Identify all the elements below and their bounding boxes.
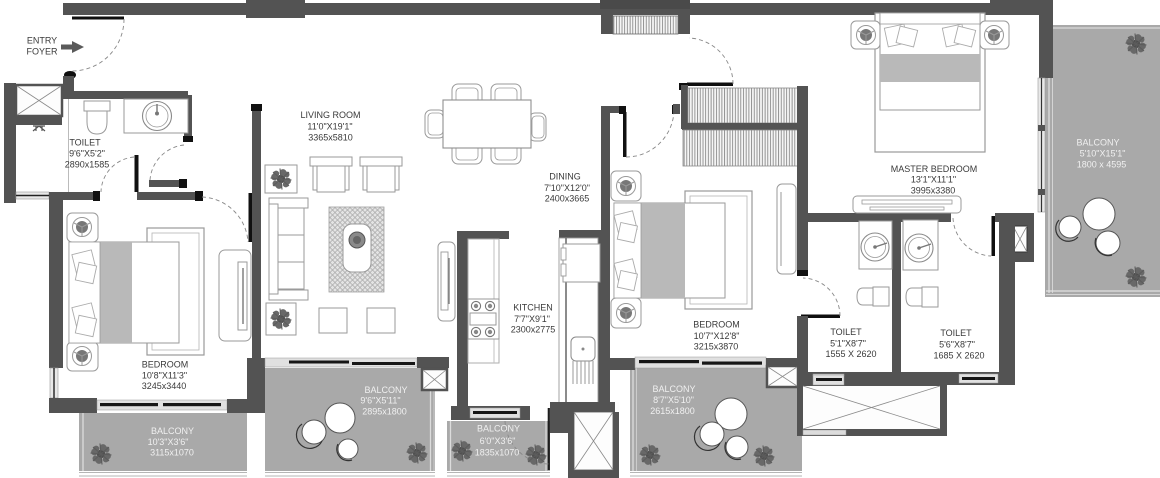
svg-text:10'8"X11'3": 10'8"X11'3" bbox=[142, 370, 187, 380]
svg-text:2300x2775: 2300x2775 bbox=[511, 325, 556, 335]
svg-text:10'7"X12'8": 10'7"X12'8" bbox=[694, 331, 740, 341]
svg-text:10'3"X3'6": 10'3"X3'6" bbox=[148, 437, 189, 447]
svg-text:1685 X 2620: 1685 X 2620 bbox=[933, 351, 984, 361]
svg-text:1800 x 4595: 1800 x 4595 bbox=[1077, 159, 1127, 169]
svg-text:3365x5810: 3365x5810 bbox=[308, 132, 353, 142]
svg-text:BALCONY: BALCONY bbox=[652, 384, 695, 394]
svg-text:KITCHEN: KITCHEN bbox=[513, 303, 553, 313]
svg-text:3995x3380: 3995x3380 bbox=[911, 185, 956, 195]
svg-text:3115x1070: 3115x1070 bbox=[150, 448, 194, 458]
svg-text:FOYER: FOYER bbox=[26, 47, 58, 57]
svg-text:BALCONY: BALCONY bbox=[1076, 138, 1119, 148]
svg-text:BEDROOM: BEDROOM bbox=[693, 320, 740, 330]
svg-text:2895x1800: 2895x1800 bbox=[362, 407, 407, 417]
svg-text:TOILET: TOILET bbox=[830, 327, 862, 337]
svg-text:LIVING ROOM: LIVING ROOM bbox=[300, 110, 360, 120]
svg-text:1835x1070: 1835x1070 bbox=[475, 448, 520, 458]
svg-text:TOILET: TOILET bbox=[69, 138, 101, 148]
svg-text:2890x1585: 2890x1585 bbox=[65, 160, 110, 170]
svg-text:7'7"X9'1": 7'7"X9'1" bbox=[514, 314, 550, 324]
svg-text:7'10"X12'0": 7'10"X12'0" bbox=[544, 183, 590, 193]
svg-text:BALCONY: BALCONY bbox=[151, 426, 194, 436]
svg-text:1555 X 2620: 1555 X 2620 bbox=[825, 349, 876, 359]
svg-text:2615x1800: 2615x1800 bbox=[650, 406, 695, 416]
svg-text:9'6"X5'2": 9'6"X5'2" bbox=[69, 149, 105, 159]
svg-text:5'6"X8'7": 5'6"X8'7" bbox=[939, 340, 975, 350]
svg-text:TOILET: TOILET bbox=[940, 328, 972, 338]
svg-text:BALCONY: BALCONY bbox=[364, 385, 407, 395]
svg-text:5'1"X8'7": 5'1"X8'7" bbox=[830, 339, 866, 349]
svg-text:2400x3665: 2400x3665 bbox=[545, 194, 590, 204]
svg-text:BEDROOM: BEDROOM bbox=[142, 360, 189, 370]
svg-text:ENTRY: ENTRY bbox=[27, 36, 57, 46]
svg-text:11'0"X19'1": 11'0"X19'1" bbox=[307, 121, 352, 131]
svg-text:8'7"X5'10": 8'7"X5'10" bbox=[653, 395, 694, 405]
svg-text:3245x3440: 3245x3440 bbox=[142, 381, 187, 391]
svg-text:6'0"X3'6": 6'0"X3'6" bbox=[480, 436, 516, 446]
svg-text:MASTER BEDROOM: MASTER BEDROOM bbox=[891, 164, 978, 174]
svg-text:3215x3870: 3215x3870 bbox=[694, 341, 739, 351]
svg-text:BALCONY: BALCONY bbox=[477, 424, 520, 434]
svg-text:5'10"X15'1": 5'10"X15'1" bbox=[1080, 149, 1126, 159]
svg-text:13'1"X11'1": 13'1"X11'1" bbox=[911, 175, 956, 185]
svg-text:9'6"X5'11": 9'6"X5'11" bbox=[360, 396, 400, 406]
svg-text:DINING: DINING bbox=[549, 172, 581, 182]
